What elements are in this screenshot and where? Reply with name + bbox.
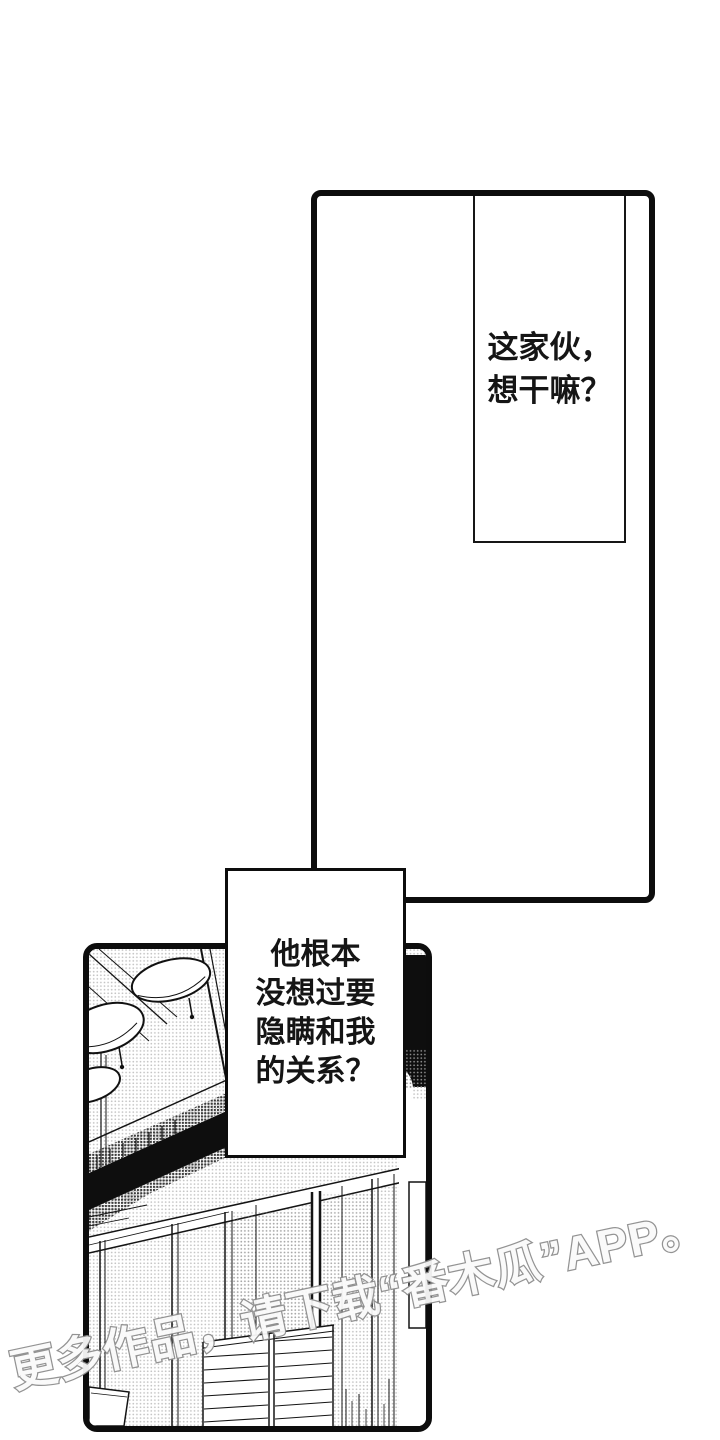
manga-page: 这家伙， 想干嘛？ xyxy=(0,0,720,1440)
narration-bubble: 他根本 没想过要 隐瞒和我 的关系？ xyxy=(225,868,406,1158)
bubble-line-3: 隐瞒和我 xyxy=(256,1013,376,1052)
bubble-line-4: 的关系？ xyxy=(256,1052,376,1091)
door-slats xyxy=(203,1325,334,1426)
panel-top: 这家伙， 想干嘛？ xyxy=(311,190,655,903)
caption-box: 这家伙， 想干嘛？ xyxy=(473,196,626,543)
bubble-line-1: 他根本 xyxy=(271,935,361,974)
bubble-line-2: 没想过要 xyxy=(256,974,376,1013)
caption-line-1: 这家伙， xyxy=(488,326,612,369)
low-table xyxy=(89,1387,129,1426)
caption-line-2: 想干嘛？ xyxy=(488,369,612,412)
